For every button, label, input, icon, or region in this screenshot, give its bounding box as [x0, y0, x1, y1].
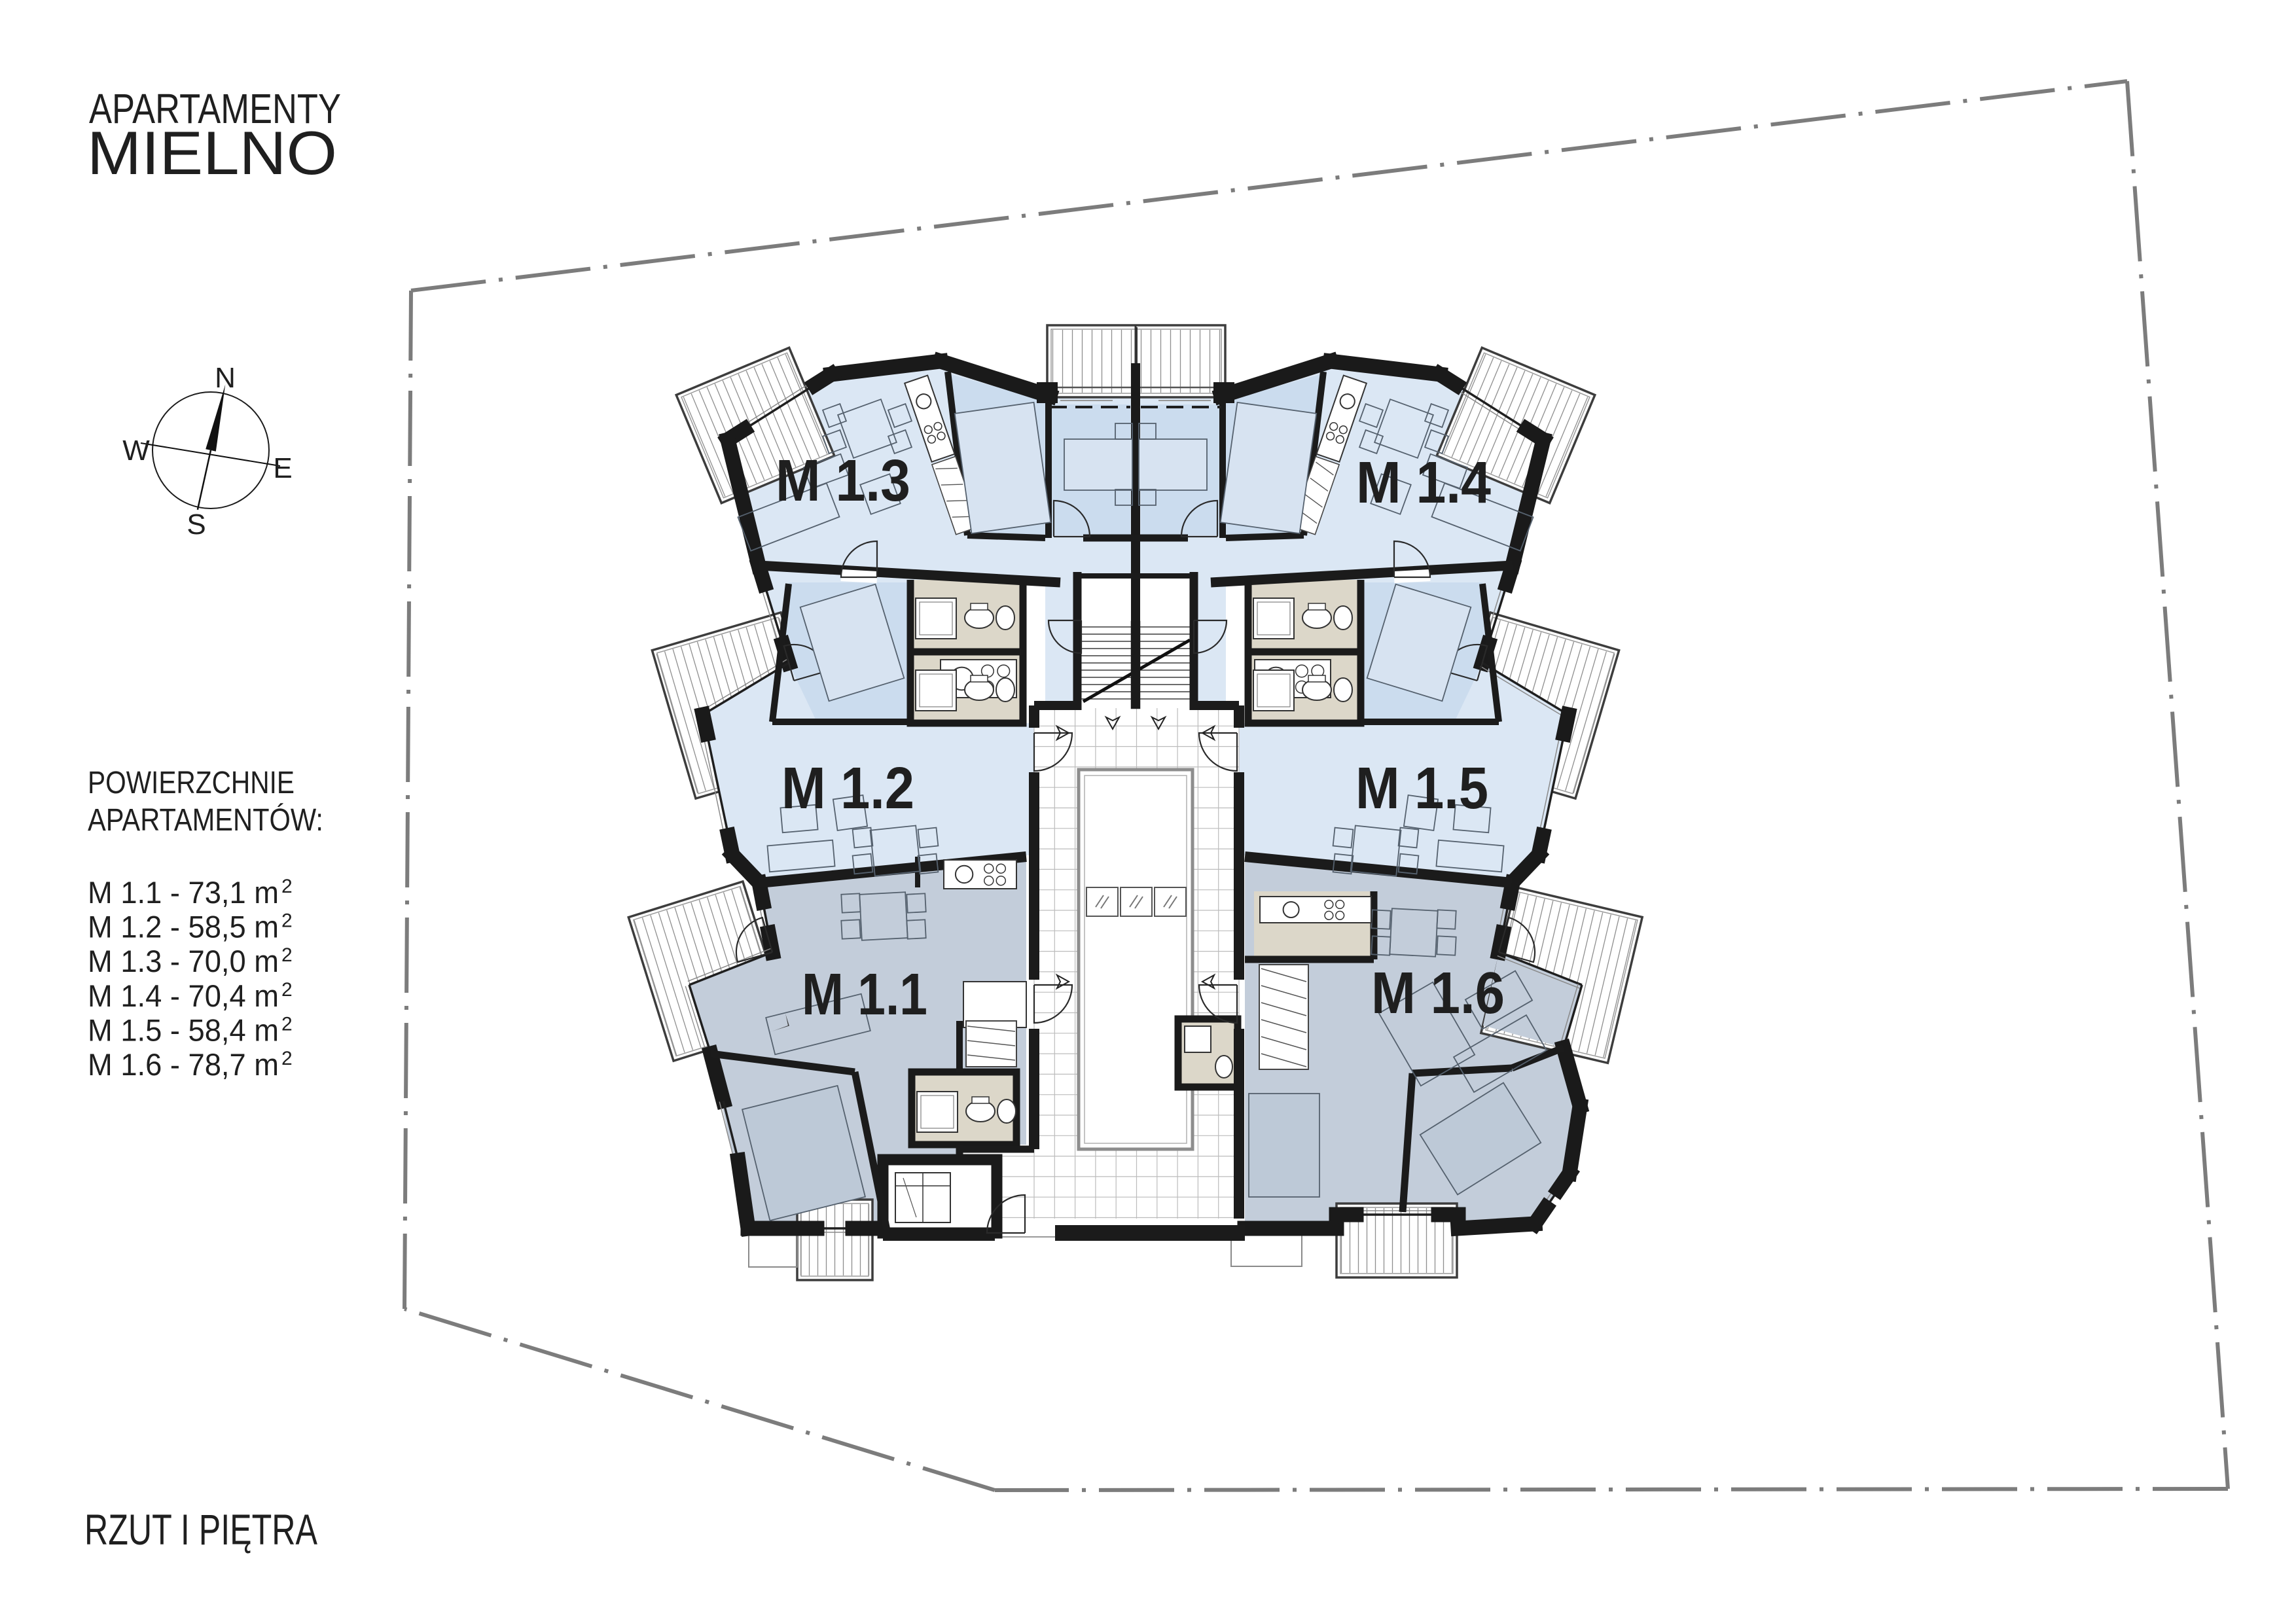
svg-text:MIELNO: MIELNO — [87, 118, 337, 187]
svg-text:2: 2 — [281, 910, 293, 932]
svg-text:M 1.6: M 1.6 — [1371, 961, 1505, 1026]
svg-text:W: W — [122, 435, 150, 467]
svg-text:2: 2 — [281, 979, 293, 1001]
svg-text:2: 2 — [281, 1048, 293, 1069]
svg-text:M 1.1: M 1.1 — [802, 962, 927, 1027]
svg-text:M 1.5: M 1.5 — [1355, 756, 1488, 821]
svg-text:M 1.2 - 58,5 m: M 1.2 - 58,5 m — [88, 910, 279, 944]
svg-text:POWIERZCHNIE: POWIERZCHNIE — [88, 766, 295, 800]
svg-text:2: 2 — [281, 944, 293, 966]
svg-text:2: 2 — [281, 876, 293, 897]
svg-text:M 1.3 - 70,0 m: M 1.3 - 70,0 m — [88, 944, 279, 978]
svg-text:M 1.2: M 1.2 — [781, 756, 914, 821]
svg-text:S: S — [187, 508, 206, 541]
svg-text:N: N — [215, 362, 236, 394]
svg-text:M 1.6 - 78,7 m: M 1.6 - 78,7 m — [88, 1047, 279, 1082]
svg-text:M 1.1 - 73,1 m: M 1.1 - 73,1 m — [88, 875, 279, 910]
svg-text:RZUT I PIĘTRA: RZUT I PIĘTRA — [84, 1505, 317, 1554]
svg-text:M 1.4 - 70,4 m: M 1.4 - 70,4 m — [88, 978, 279, 1013]
svg-text:APARTAMENTÓW:: APARTAMENTÓW: — [88, 802, 323, 838]
svg-text:M 1.4: M 1.4 — [1356, 450, 1491, 516]
svg-text:M 1.3: M 1.3 — [776, 448, 910, 514]
svg-text:2: 2 — [281, 1013, 293, 1035]
svg-text:M 1.5 - 58,4 m: M 1.5 - 58,4 m — [88, 1012, 279, 1047]
svg-text:E: E — [273, 452, 292, 484]
